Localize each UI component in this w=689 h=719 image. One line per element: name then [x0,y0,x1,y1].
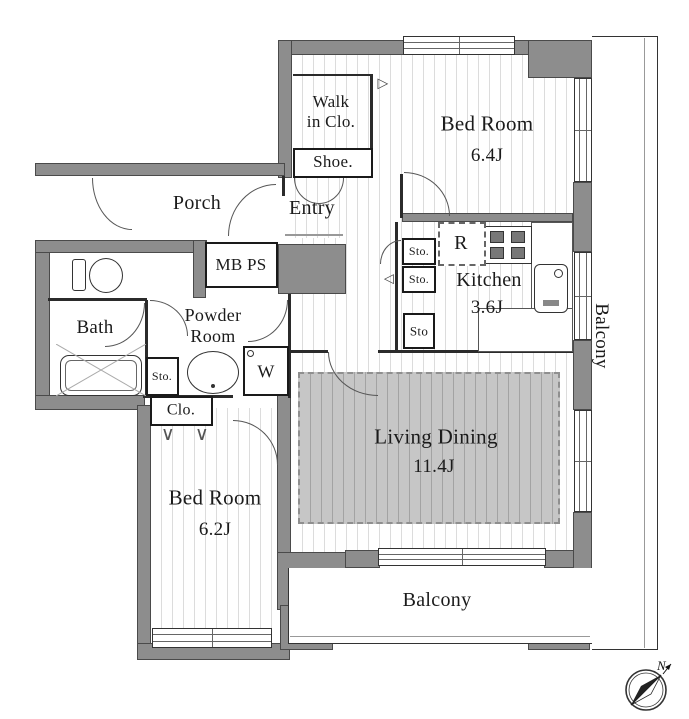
wic-door-marker-icon: ▷ [377,76,388,93]
line-entry-step [285,234,343,236]
porch-door-arc [92,178,132,230]
storage-bath-label: Sto. [152,369,172,383]
kitchen-area-label: 3.6J [471,297,503,319]
entry-label: Entry [289,197,335,221]
faucet-icon [554,269,563,278]
wall-top-left [278,40,405,55]
wall-bath-top [35,240,207,253]
balcony-bottom-label: Balcony [403,589,472,613]
washer-faucet-icon [247,350,254,357]
wall-bath-bottom [35,395,145,410]
wic-line1: Walk [313,92,350,111]
window-center-line [575,296,591,297]
storage-kitchen-1-label: Sto. [409,244,429,258]
line-wic-top-wall [293,74,373,76]
bath-label: Bath [76,317,113,339]
burner-icon [490,247,504,259]
sink-drain-icon [211,384,215,388]
closet-hanger-icon-1: ∨ [161,423,175,445]
compass-north-label: N [656,658,667,673]
window-center-line [459,37,460,54]
drain-board-icon [543,300,559,306]
line-bedroom1-door-leaf [400,174,403,218]
closet-hanger-icon-2: ∨ [195,423,209,445]
powder-room-line2: Room [190,326,235,346]
closet-label: Clo. [167,402,195,421]
powder-room-line1: Powder [185,305,242,325]
balcony-right-label: Balcony [590,303,612,368]
entry-door-arc [228,184,276,236]
living-dining-label: Living Dining [374,425,497,450]
mb-ps-label: MB PS [215,255,266,275]
bedroom1-label: Bed Room [441,112,534,137]
window-center-line [462,549,463,565]
wc-door-arc [150,300,188,336]
balcony-right-inner-line [644,38,645,648]
kitchen-label: Kitchen [456,269,521,293]
balcony-bottom-inner-line [290,636,590,637]
burner-icon [511,247,525,259]
washer-label: W [257,361,274,382]
wall-bedroom2-left [137,405,151,660]
wall-bath-left [35,240,50,410]
window-bedroom2-south [152,628,272,648]
window-living-east [574,410,592,512]
wic-line2: in Clo. [307,112,355,131]
storage-kitchen-2-label: Sto. [409,272,429,286]
toilet-tank-icon [72,259,86,291]
refrigerator-label: R [454,232,468,256]
porch-label: Porch [173,192,221,216]
wall-top-right-notch [528,40,592,78]
line-porch-entry-divider [282,176,285,196]
burner-icon [511,231,525,243]
wall-porch-top [35,163,285,176]
storage-kitchen-2-door-marker-icon: ◁ [384,271,394,286]
line-wc-bottom-wall [48,298,147,301]
burner-icon [490,231,504,243]
wall-below-entry [278,244,346,294]
window-center-line [212,629,213,647]
window-center-line [575,130,591,131]
living-dining-area-label: 11.4J [413,456,454,478]
bath-cross-lines-icon [56,344,146,396]
line-wic-right-wall [370,75,373,151]
wall-living-south-left [345,550,380,568]
bedroom2-label: Bed Room [169,486,262,511]
powder-door-arc [248,300,288,342]
wall-upper-left [278,40,292,178]
bedroom1-area-label: 6.4J [471,145,503,167]
window-living-south [378,548,546,566]
wall-living-south-right [544,550,575,568]
window-center-line [575,461,591,462]
powder-room-label: Powder Room [185,305,242,347]
shoe-closet-label: Shoe. [313,152,353,172]
powder-sink-icon [187,351,239,394]
storage-kitchen-3-label: Sto [410,323,428,338]
wall-right-seg-a [573,182,592,252]
walk-in-closet-label: Walk in Clo. [307,92,355,132]
bedroom2-area-label: 6.2J [199,519,231,541]
stove-icon [484,226,532,264]
toilet-bowl-icon [89,258,123,293]
window-bedroom1-north [403,36,515,55]
window-bedroom1-east [574,78,592,182]
compass-icon: N [613,656,681,718]
floor-plan: ▷ ◁ ∨ ∨ Bed Room 6.4J Bed Room 6.2J Livi… [0,0,689,719]
kitchen-sink-icon [534,264,568,313]
